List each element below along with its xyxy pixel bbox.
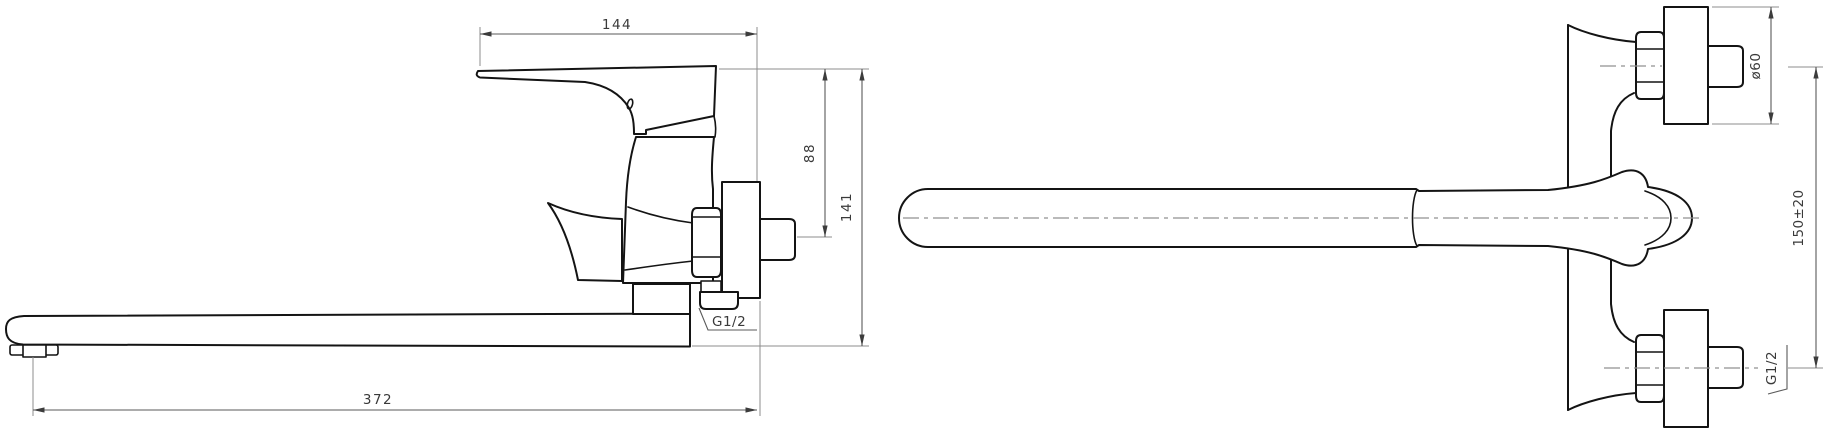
plan-view: ø60 150±20 G1/2: [899, 7, 1823, 427]
outlet-fitting: [700, 292, 738, 309]
spout-collar: [633, 284, 690, 314]
wall-flange: [722, 182, 760, 298]
aerator-insert: [23, 345, 46, 357]
dim-spout-length-label: 372: [363, 392, 393, 408]
bonnet-edge: [714, 116, 716, 137]
side-view: 144 88 141 372 G1/2: [6, 17, 869, 416]
mounting-nut: [692, 208, 721, 277]
flange-top: [1664, 7, 1708, 124]
label-outlet-thread: G1/2: [699, 308, 757, 330]
dimension-inlet-spacing: 150±20: [1788, 67, 1823, 368]
shank-top: [1708, 46, 1743, 87]
dim-top-to-inlet-label: 88: [802, 143, 818, 163]
technical-drawing: 144 88 141 372 G1/2: [0, 0, 1824, 432]
diverter-knob: [548, 203, 622, 281]
dim-overall-height-label: 141: [839, 192, 855, 222]
outlet-fitting-step: [701, 281, 721, 292]
dim-handle-reach-label: 144: [602, 17, 632, 33]
spout-tube: [6, 314, 690, 347]
lever-handle: [477, 66, 716, 134]
inlet-thread-label: G1/2: [1764, 351, 1780, 385]
inlet-shank: [760, 219, 795, 260]
dim-inlet-spacing-label: 150±20: [1791, 189, 1807, 246]
outlet-thread-label: G1/2: [712, 314, 746, 330]
dim-flange-diameter-label: ø60: [1748, 53, 1764, 80]
label-inlet-thread: G1/2: [1764, 345, 1787, 394]
